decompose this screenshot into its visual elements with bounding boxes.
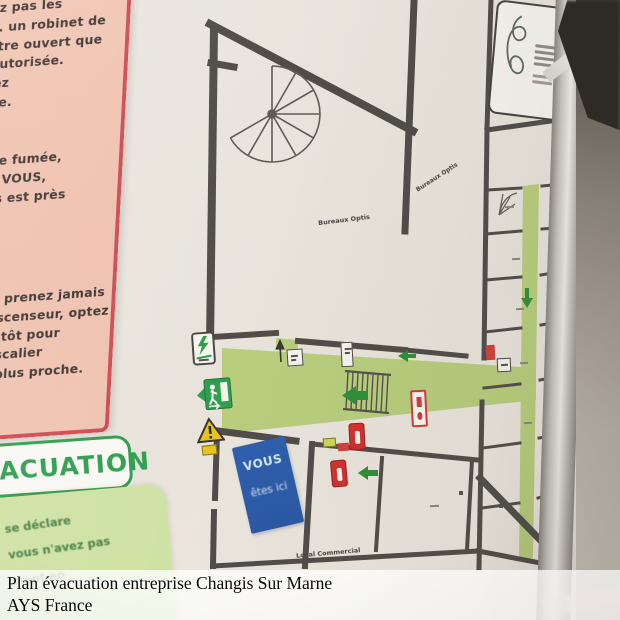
route-corridor	[222, 348, 536, 434]
door-arc-icon	[499, 193, 517, 215]
room-text-mark	[520, 362, 528, 364]
fire-extinguisher-icon	[330, 459, 348, 487]
warning-tag	[202, 444, 218, 456]
room-text-mark	[516, 308, 524, 310]
emergency-exit-sign-icon	[196, 375, 235, 412]
fire-extinguisher-icon	[348, 423, 365, 451]
you-are-here-text: VOUS	[235, 450, 291, 476]
fire-equipment-sign-icon	[410, 390, 428, 428]
room-text-mark	[512, 258, 520, 260]
caption-title: Plan évacuation entreprise Changis Sur M…	[7, 573, 620, 594]
evacuation-plan-photo: Bureaux Optis Bureaux Optis Local Commer…	[0, 0, 620, 620]
safety-paragraph: Ne prenez jamais l'ascenseur, optez plut…	[0, 282, 112, 386]
room-text-mark	[524, 422, 532, 424]
mini-sign	[338, 443, 350, 452]
logo-glyph-icon	[492, 6, 536, 110]
mini-sign	[323, 438, 337, 448]
warning-triangle-icon	[195, 416, 226, 446]
door-label	[340, 342, 353, 368]
door-label	[497, 358, 512, 373]
caption-bar: Plan évacuation entreprise Changis Sur M…	[0, 570, 620, 620]
electrical-cutoff-sign-icon	[191, 331, 216, 366]
you-are-here-text: êtes ici	[241, 478, 296, 502]
caption-subtitle: AYS France	[7, 595, 620, 616]
mini-sign	[486, 345, 496, 360]
safety-paragraph: ombrez pas les uation. un robinet de peu…	[0, 0, 128, 116]
door-label	[286, 348, 303, 366]
spiral-staircase-icon	[230, 66, 320, 162]
safety-paragraph: n cas de fumée, AISSEZ VOUS, air frais e…	[0, 147, 68, 231]
arrow-left-icon	[358, 466, 378, 480]
evacuation-title: ACUATION	[0, 446, 151, 487]
